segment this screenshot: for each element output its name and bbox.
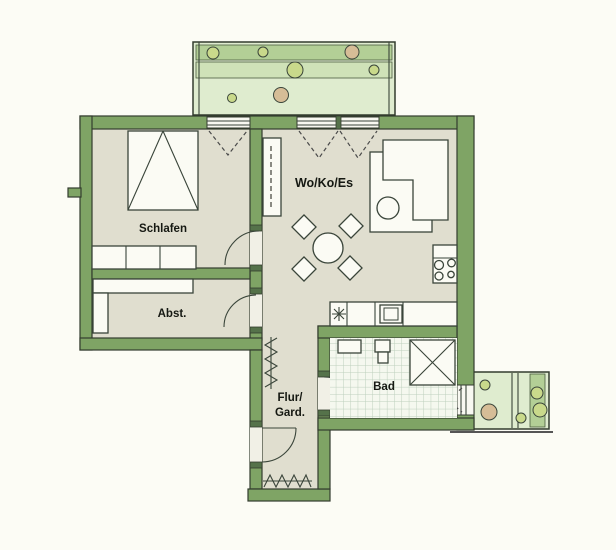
wall-left-pier	[68, 188, 81, 197]
planter-icon	[533, 403, 547, 417]
hallway-label-line2: Gard.	[275, 407, 305, 419]
planter-icon	[228, 94, 237, 103]
planter-icon	[369, 65, 379, 75]
planter-icon	[258, 47, 268, 57]
planter-icon	[207, 47, 219, 59]
bedroom-label: Schlafen	[139, 223, 187, 235]
washbasin-icon	[338, 340, 361, 353]
bedroom-balcony-door	[207, 117, 250, 128]
toilet-bowl-icon	[378, 352, 388, 363]
drain-star-icon	[332, 307, 346, 321]
planter-icon	[531, 387, 543, 399]
storage-label: Abst.	[158, 308, 187, 320]
shelf-icon	[93, 293, 108, 333]
wall-bath-top	[318, 326, 457, 338]
bathroom	[330, 338, 457, 418]
planter-icon	[481, 404, 497, 420]
planter-icon	[287, 62, 303, 78]
coffee-table-icon	[377, 197, 399, 219]
toilet-icon	[375, 340, 390, 352]
wardrobe-icon	[92, 246, 196, 269]
wall-left	[80, 116, 92, 350]
floor-plan-svg: Schlafen Abst. Wo/Ko/Es Flur/ Gard. Bad	[0, 0, 616, 550]
planter-icon	[274, 88, 289, 103]
dining-table-icon	[313, 233, 343, 263]
bathroom-label: Bad	[373, 381, 395, 393]
floor-plan: Schlafen Abst. Wo/Ko/Es Flur/ Gard. Bad	[0, 0, 616, 550]
wall-storage-bottom	[80, 338, 262, 350]
planter-icon	[345, 45, 359, 59]
wall-bath-bottom	[318, 418, 474, 430]
hallway-label-line1: Flur/	[278, 392, 304, 404]
wall-right	[457, 116, 474, 430]
bed-icon	[128, 131, 198, 210]
planter-icon	[480, 380, 490, 390]
wall-hall-bottom	[248, 489, 330, 501]
balcony-top	[193, 42, 395, 115]
planter-icon	[516, 413, 526, 423]
living-label: Wo/Ko/Es	[295, 176, 353, 190]
shelf-icon	[93, 279, 193, 293]
wall-top	[80, 116, 474, 129]
